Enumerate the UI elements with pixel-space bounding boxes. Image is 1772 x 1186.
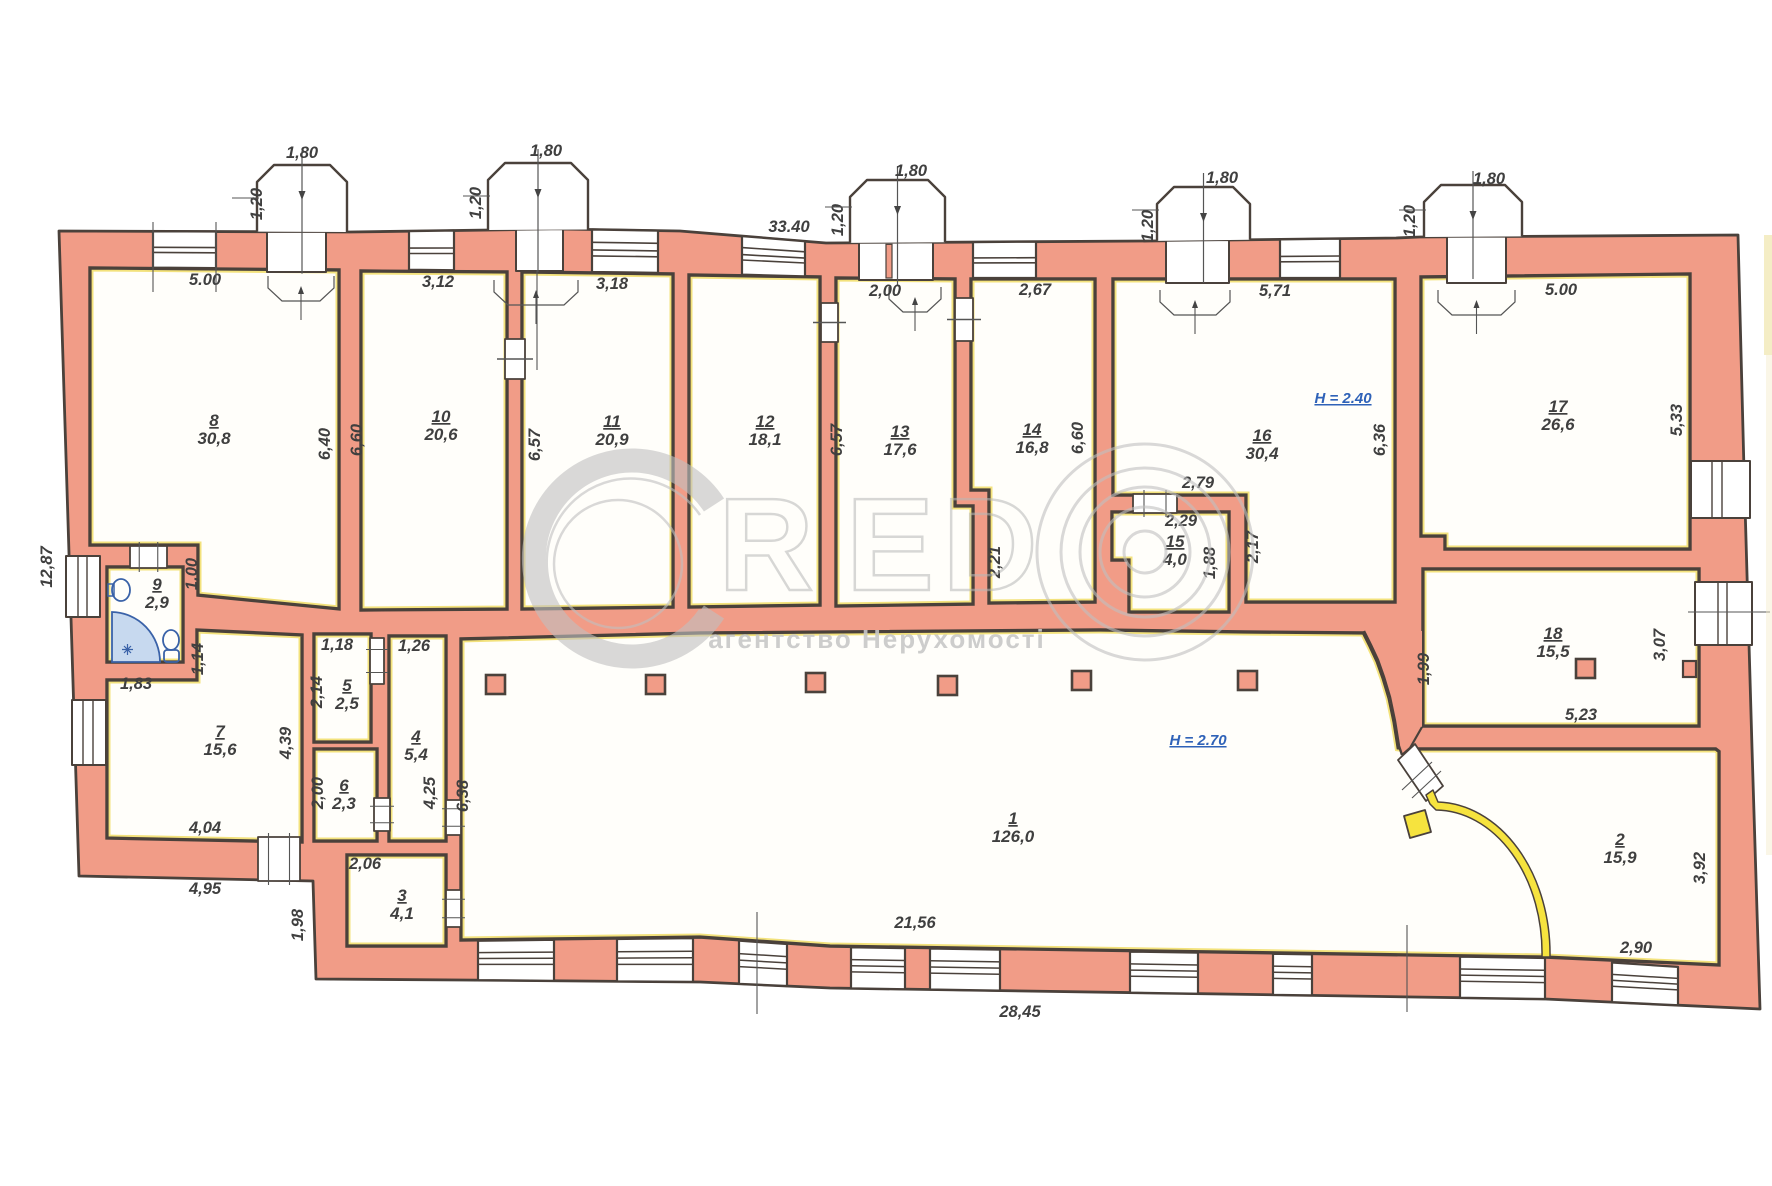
svg-text:1: 1 [1008,809,1017,828]
svg-text:1,20: 1,20 [1401,204,1419,237]
svg-text:15: 15 [1166,532,1185,551]
svg-text:21,56: 21,56 [893,914,936,932]
svg-text:D: D [942,471,1037,618]
svg-text:33.40: 33.40 [768,218,810,236]
svg-text:6,36: 6,36 [1371,423,1389,456]
svg-text:7: 7 [215,722,226,741]
svg-text:6,57: 6,57 [526,428,544,461]
svg-text:12: 12 [756,412,775,431]
svg-text:11: 11 [603,412,621,431]
svg-text:28,45: 28,45 [998,1003,1041,1021]
svg-text:18,1: 18,1 [748,430,781,449]
svg-text:13: 13 [891,422,910,441]
svg-text:6,40: 6,40 [316,427,334,460]
svg-text:1,00: 1,00 [183,557,201,590]
svg-text:2,14: 2,14 [308,676,326,709]
svg-text:5,23: 5,23 [1565,706,1597,724]
svg-text:5,33: 5,33 [1668,404,1686,436]
svg-text:1,18: 1,18 [321,636,354,654]
svg-text:1,20: 1,20 [467,186,485,219]
svg-text:5.00: 5.00 [189,271,222,289]
svg-text:4: 4 [410,727,421,746]
svg-text:20,9: 20,9 [594,430,629,449]
svg-text:15,5: 15,5 [1536,642,1570,661]
svg-text:2: 2 [1614,830,1625,849]
svg-text:2,67: 2,67 [1018,281,1052,299]
svg-text:3,18: 3,18 [596,275,629,293]
svg-text:2,9: 2,9 [144,593,169,612]
svg-text:5: 5 [342,676,352,695]
svg-text:1,26: 1,26 [398,637,431,655]
svg-text:1,80: 1,80 [1206,169,1239,187]
svg-text:26,6: 26,6 [1540,415,1575,434]
svg-text:H = 2.70: H = 2.70 [1169,732,1227,749]
svg-text:3,07: 3,07 [1651,628,1669,661]
svg-text:4,04: 4,04 [188,819,221,837]
svg-text:3: 3 [397,886,407,905]
svg-text:4,39: 4,39 [277,726,295,760]
svg-text:E: E [846,471,934,618]
svg-text:2,3: 2,3 [331,794,356,813]
svg-text:126,0: 126,0 [992,827,1035,846]
svg-text:8: 8 [209,411,219,430]
svg-text:1,20: 1,20 [1139,209,1157,242]
svg-text:9: 9 [152,575,162,594]
svg-text:17,6: 17,6 [883,440,917,459]
svg-text:5,4: 5,4 [404,745,428,764]
svg-text:3,12: 3,12 [422,273,454,291]
svg-text:5,71: 5,71 [1259,282,1291,300]
svg-text:R: R [718,471,813,618]
svg-text:H = 2.40: H = 2.40 [1314,390,1372,407]
svg-text:2,79: 2,79 [1181,474,1215,492]
svg-text:1,98: 1,98 [289,908,307,941]
svg-text:1,83: 1,83 [120,675,152,693]
svg-text:4,25: 4,25 [421,776,439,810]
svg-text:17: 17 [1549,397,1569,416]
svg-text:2,00: 2,00 [868,282,902,300]
svg-text:1,14: 1,14 [189,643,207,675]
svg-text:6,60: 6,60 [348,423,366,456]
svg-text:2,00: 2,00 [309,776,327,810]
svg-text:16: 16 [1253,426,1272,445]
svg-text:30,8: 30,8 [197,429,231,448]
svg-text:14: 14 [1023,420,1042,439]
svg-text:3,92: 3,92 [1691,852,1709,884]
svg-text:1,20: 1,20 [248,187,266,220]
svg-text:1,80: 1,80 [895,162,928,180]
svg-text:10: 10 [432,407,451,426]
svg-text:1,80: 1,80 [286,144,319,162]
svg-text:4,1: 4,1 [389,904,414,923]
svg-text:1,20: 1,20 [829,203,847,236]
svg-text:2,06: 2,06 [348,855,382,873]
svg-text:6,60: 6,60 [1069,421,1087,454]
svg-text:18: 18 [1544,624,1563,643]
svg-text:2,90: 2,90 [1619,939,1653,957]
svg-text:30,4: 30,4 [1245,444,1279,463]
svg-text:16,8: 16,8 [1015,438,1049,457]
svg-text:6,57: 6,57 [828,423,846,456]
svg-text:1,80: 1,80 [530,142,563,160]
svg-text:4,95: 4,95 [188,880,222,898]
svg-text:агентство Нерухомості: агентство Нерухомості [708,624,1046,654]
svg-text:5.00: 5.00 [1545,281,1578,299]
svg-text:20,6: 20,6 [423,425,458,444]
svg-text:15,6: 15,6 [203,740,237,759]
svg-text:2,5: 2,5 [334,694,359,713]
svg-text:1,99: 1,99 [1415,652,1433,685]
svg-text:1,80: 1,80 [1473,170,1506,188]
svg-text:15,9: 15,9 [1603,848,1637,867]
svg-text:12,87: 12,87 [38,546,56,588]
svg-text:6,38: 6,38 [454,779,472,812]
svg-text:6: 6 [339,776,349,795]
